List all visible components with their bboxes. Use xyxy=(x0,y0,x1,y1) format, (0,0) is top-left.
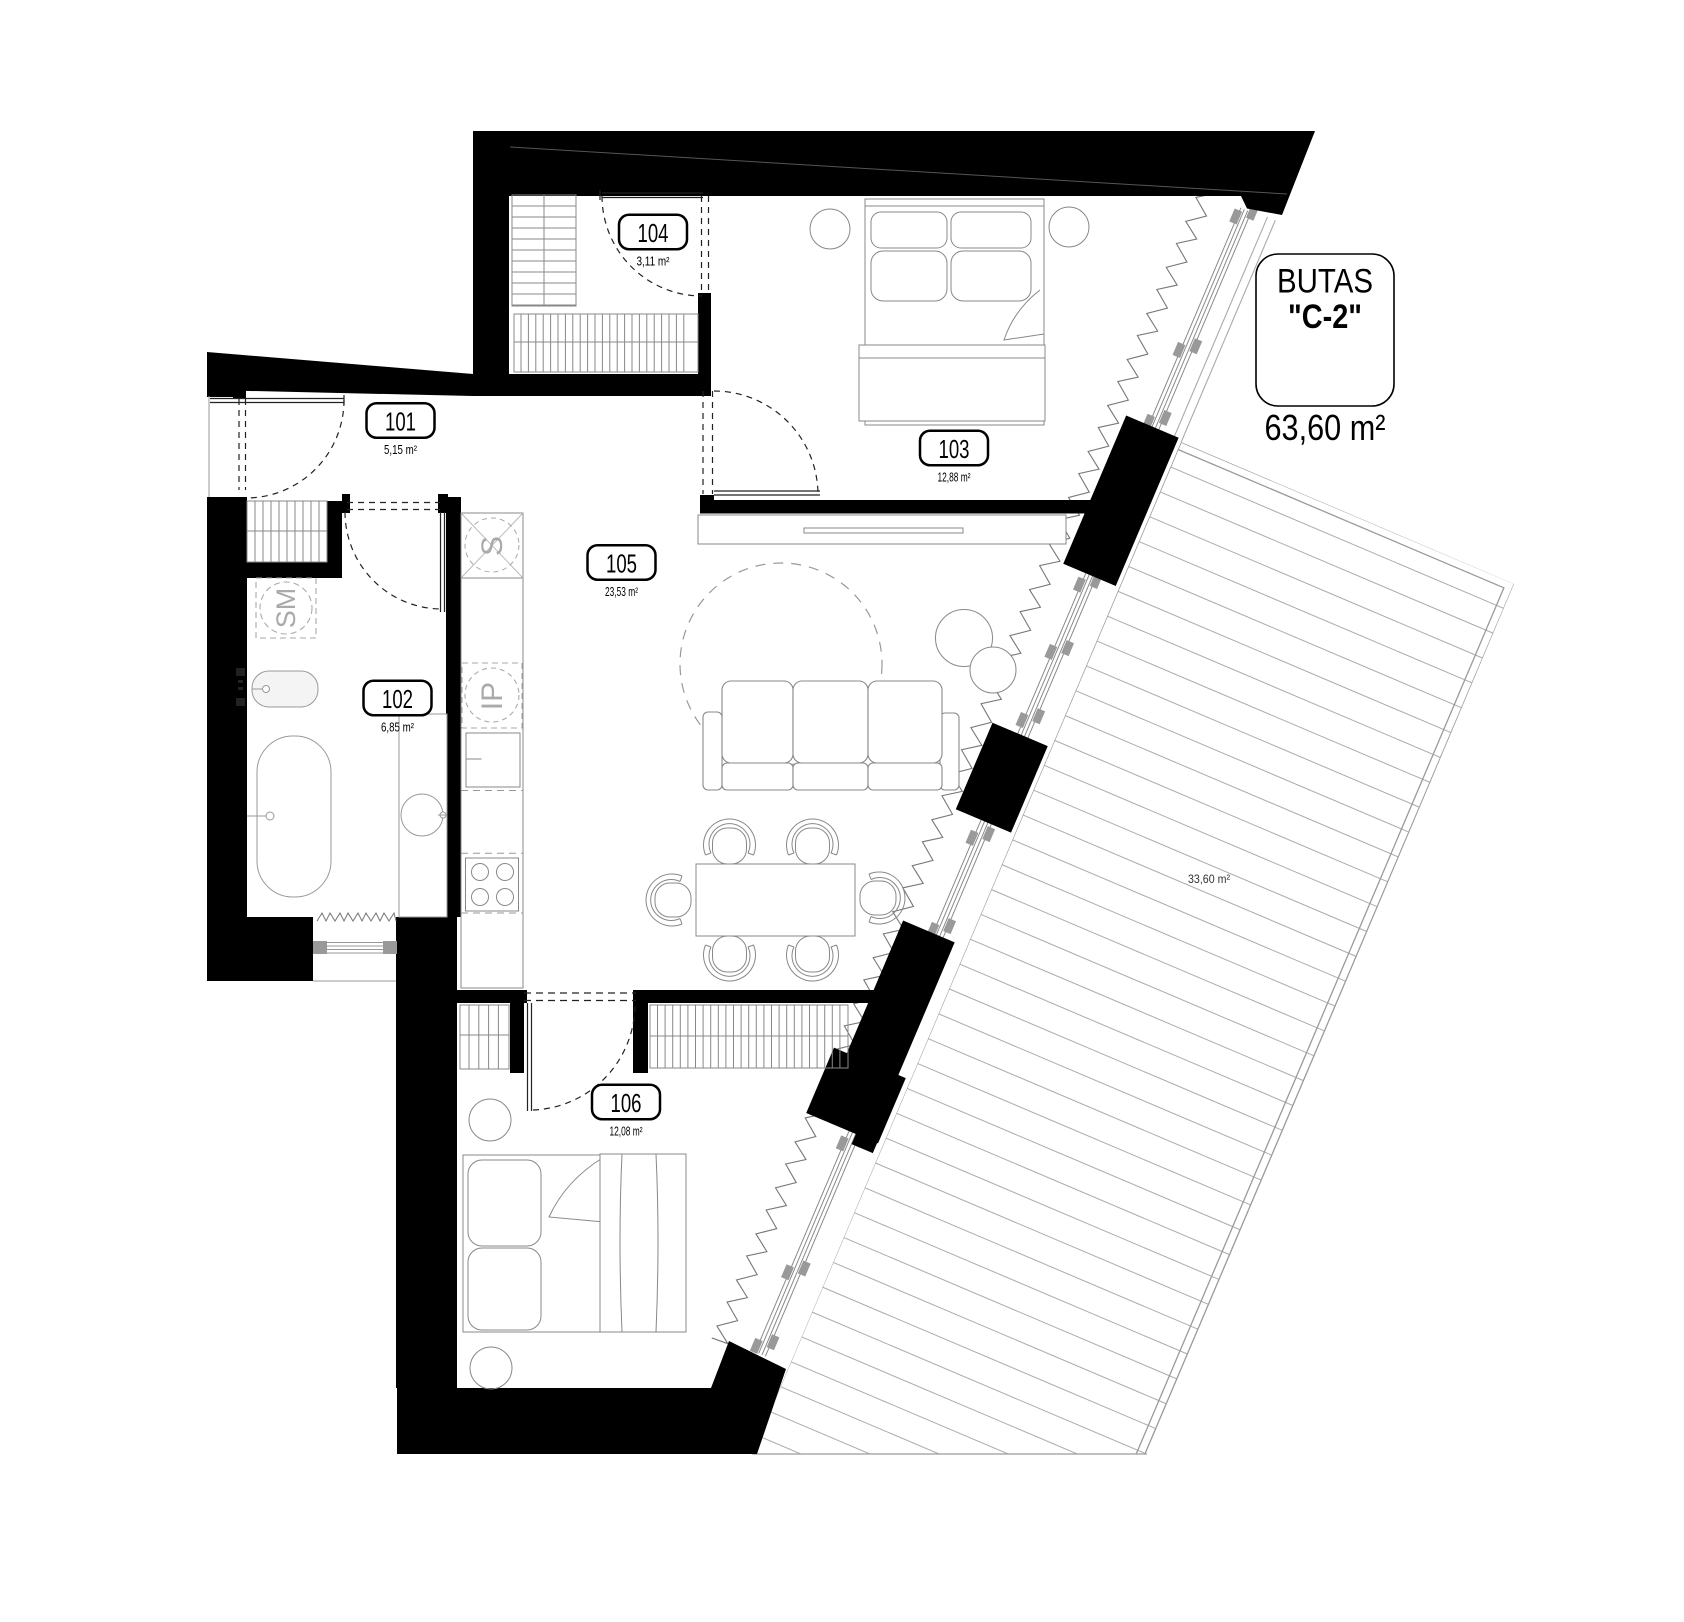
svg-text:103: 103 xyxy=(939,434,970,464)
svg-text:12,08 m²: 12,08 m² xyxy=(610,1124,643,1139)
svg-text:33,60 m²: 33,60 m² xyxy=(1188,872,1230,886)
svg-text:SM: SM xyxy=(271,588,301,629)
svg-text:63,60 m²: 63,60 m² xyxy=(1265,407,1386,448)
svg-text:106: 106 xyxy=(611,1088,642,1118)
svg-text:23,53 m²: 23,53 m² xyxy=(605,584,638,599)
svg-text:5,15 m²: 5,15 m² xyxy=(384,442,417,457)
svg-text:12,88 m²: 12,88 m² xyxy=(938,470,971,485)
svg-text:101: 101 xyxy=(385,407,416,437)
svg-text:3,11 m²: 3,11 m² xyxy=(637,254,671,269)
svg-text:105: 105 xyxy=(606,549,637,579)
svg-text:"C-2": "C-2" xyxy=(1288,298,1362,336)
svg-text:104: 104 xyxy=(638,218,669,248)
svg-text:102: 102 xyxy=(382,684,413,714)
svg-text:6,85 m²: 6,85 m² xyxy=(381,720,414,735)
svg-text:BUTAS: BUTAS xyxy=(1277,263,1373,301)
svg-text:IP: IP xyxy=(476,682,509,710)
svg-text:S: S xyxy=(476,536,509,556)
